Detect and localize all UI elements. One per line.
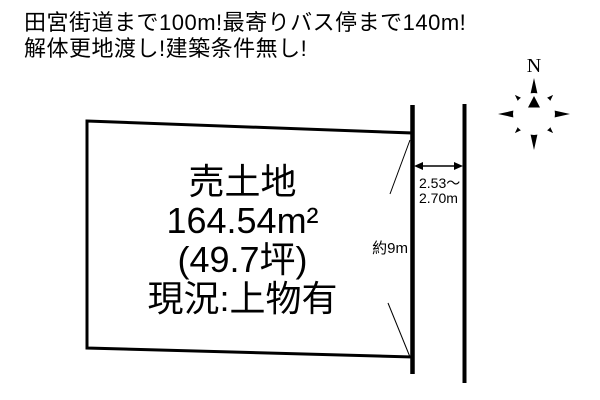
road-width-arrow: [414, 162, 463, 170]
land-sale-diagram: 田宮街道まで100m!最寄りバス停まで140m! 解体更地渡し!建築条件無し! …: [0, 0, 600, 400]
parcel-status: 現況:上物有: [80, 279, 405, 318]
parcel-area-sqm: 164.54m²: [80, 201, 405, 240]
road-width-label: 2.53〜 2.70m: [419, 176, 460, 206]
parcel-title: 売土地: [80, 162, 405, 201]
road-width-line1: 2.53〜: [419, 176, 460, 191]
compass-north-label: N: [504, 55, 564, 78]
frontage-label: 約9m: [350, 237, 408, 258]
road-width-line2: 2.70m: [419, 191, 460, 206]
compass-rose: [498, 78, 570, 150]
